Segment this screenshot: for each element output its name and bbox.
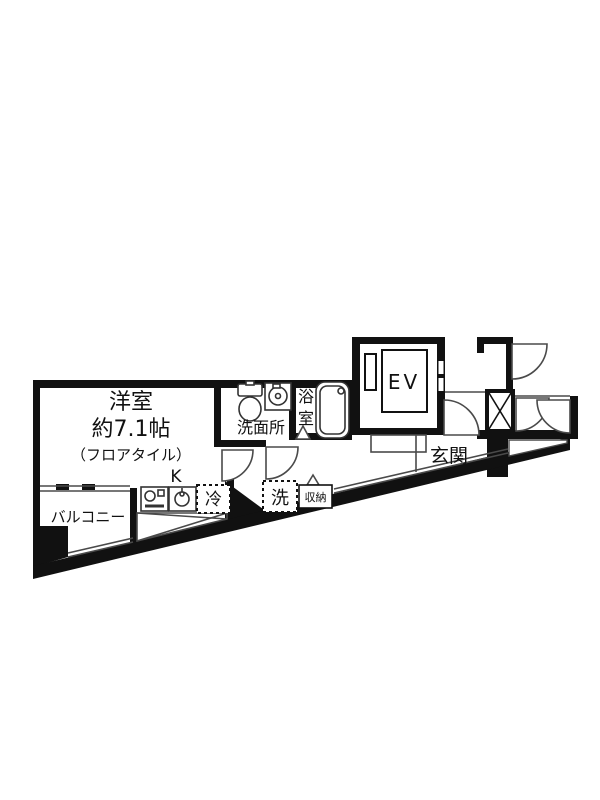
deadspace-x1 (137, 513, 227, 519)
kitchen-sink-tap (180, 492, 184, 496)
main-room-size: 約7.1帖 (92, 417, 171, 442)
neighbor-door-top (512, 344, 547, 379)
wall-room-washroom (214, 380, 221, 447)
corridor-line-2 (334, 453, 508, 493)
bathroom-label-char2: 室 (298, 409, 314, 428)
ev-door-slot-2 (439, 378, 444, 391)
fridge-label: 冷 (205, 490, 222, 510)
wall-ev-left (352, 337, 360, 435)
window-tick-1 (56, 484, 69, 490)
wall-ev-bottom (352, 428, 445, 435)
main-room-door (222, 450, 253, 481)
bathtub-drain (338, 388, 344, 394)
wall-topright-corner (477, 337, 484, 353)
bathtub-icon (316, 382, 349, 438)
front-door (444, 400, 479, 435)
washroom-label: 洗面所 (237, 418, 285, 437)
wall-left (33, 380, 40, 528)
main-room-floor-note: （フロアタイル） (71, 446, 191, 464)
storage-label: 収納 (305, 491, 327, 504)
floor-plan-page: EV 冷 洗 (0, 0, 600, 800)
toilet-tank-button (246, 381, 254, 385)
ev-landing-tray (371, 435, 426, 452)
washbasin-drain (276, 394, 281, 399)
washbasin-icon (265, 383, 291, 410)
main-room-name: 洋室 (109, 390, 153, 415)
washroom-door (266, 447, 298, 479)
kitchen-label: K (170, 467, 182, 487)
kitchen-sink-icon (169, 487, 196, 511)
neighbor-door-b (537, 400, 570, 433)
entrance-label: 玄関 (430, 445, 468, 467)
elevator-label: EV (388, 370, 420, 394)
elevator: EV (365, 350, 427, 412)
washbasin-tap (273, 384, 280, 388)
washer-label: 洗 (271, 488, 289, 509)
elevator-counterweight (365, 354, 376, 390)
pipe-space-box (487, 391, 513, 431)
storage-box: 収納 (299, 485, 332, 508)
floor-plan-drawing: EV 冷 洗 (0, 0, 600, 800)
wall-washroom-bottom (214, 440, 266, 447)
stove-burner (145, 491, 155, 501)
stove-icon (141, 487, 168, 511)
ev-door-slot-1 (439, 361, 444, 374)
wall-balcony-right (130, 488, 137, 543)
wall-far-right (570, 396, 578, 439)
balcony-label: バルコニー (51, 508, 126, 526)
fridge-box: 冷 (197, 485, 230, 513)
window-tick-2 (82, 484, 95, 490)
washer-box: 洗 (263, 481, 297, 512)
toilet-icon (238, 381, 262, 421)
wall-ev-top (352, 337, 445, 344)
bathroom-label-char1: 浴 (298, 387, 314, 406)
stove-knob (158, 490, 164, 496)
storage-door-triangle (307, 475, 319, 485)
